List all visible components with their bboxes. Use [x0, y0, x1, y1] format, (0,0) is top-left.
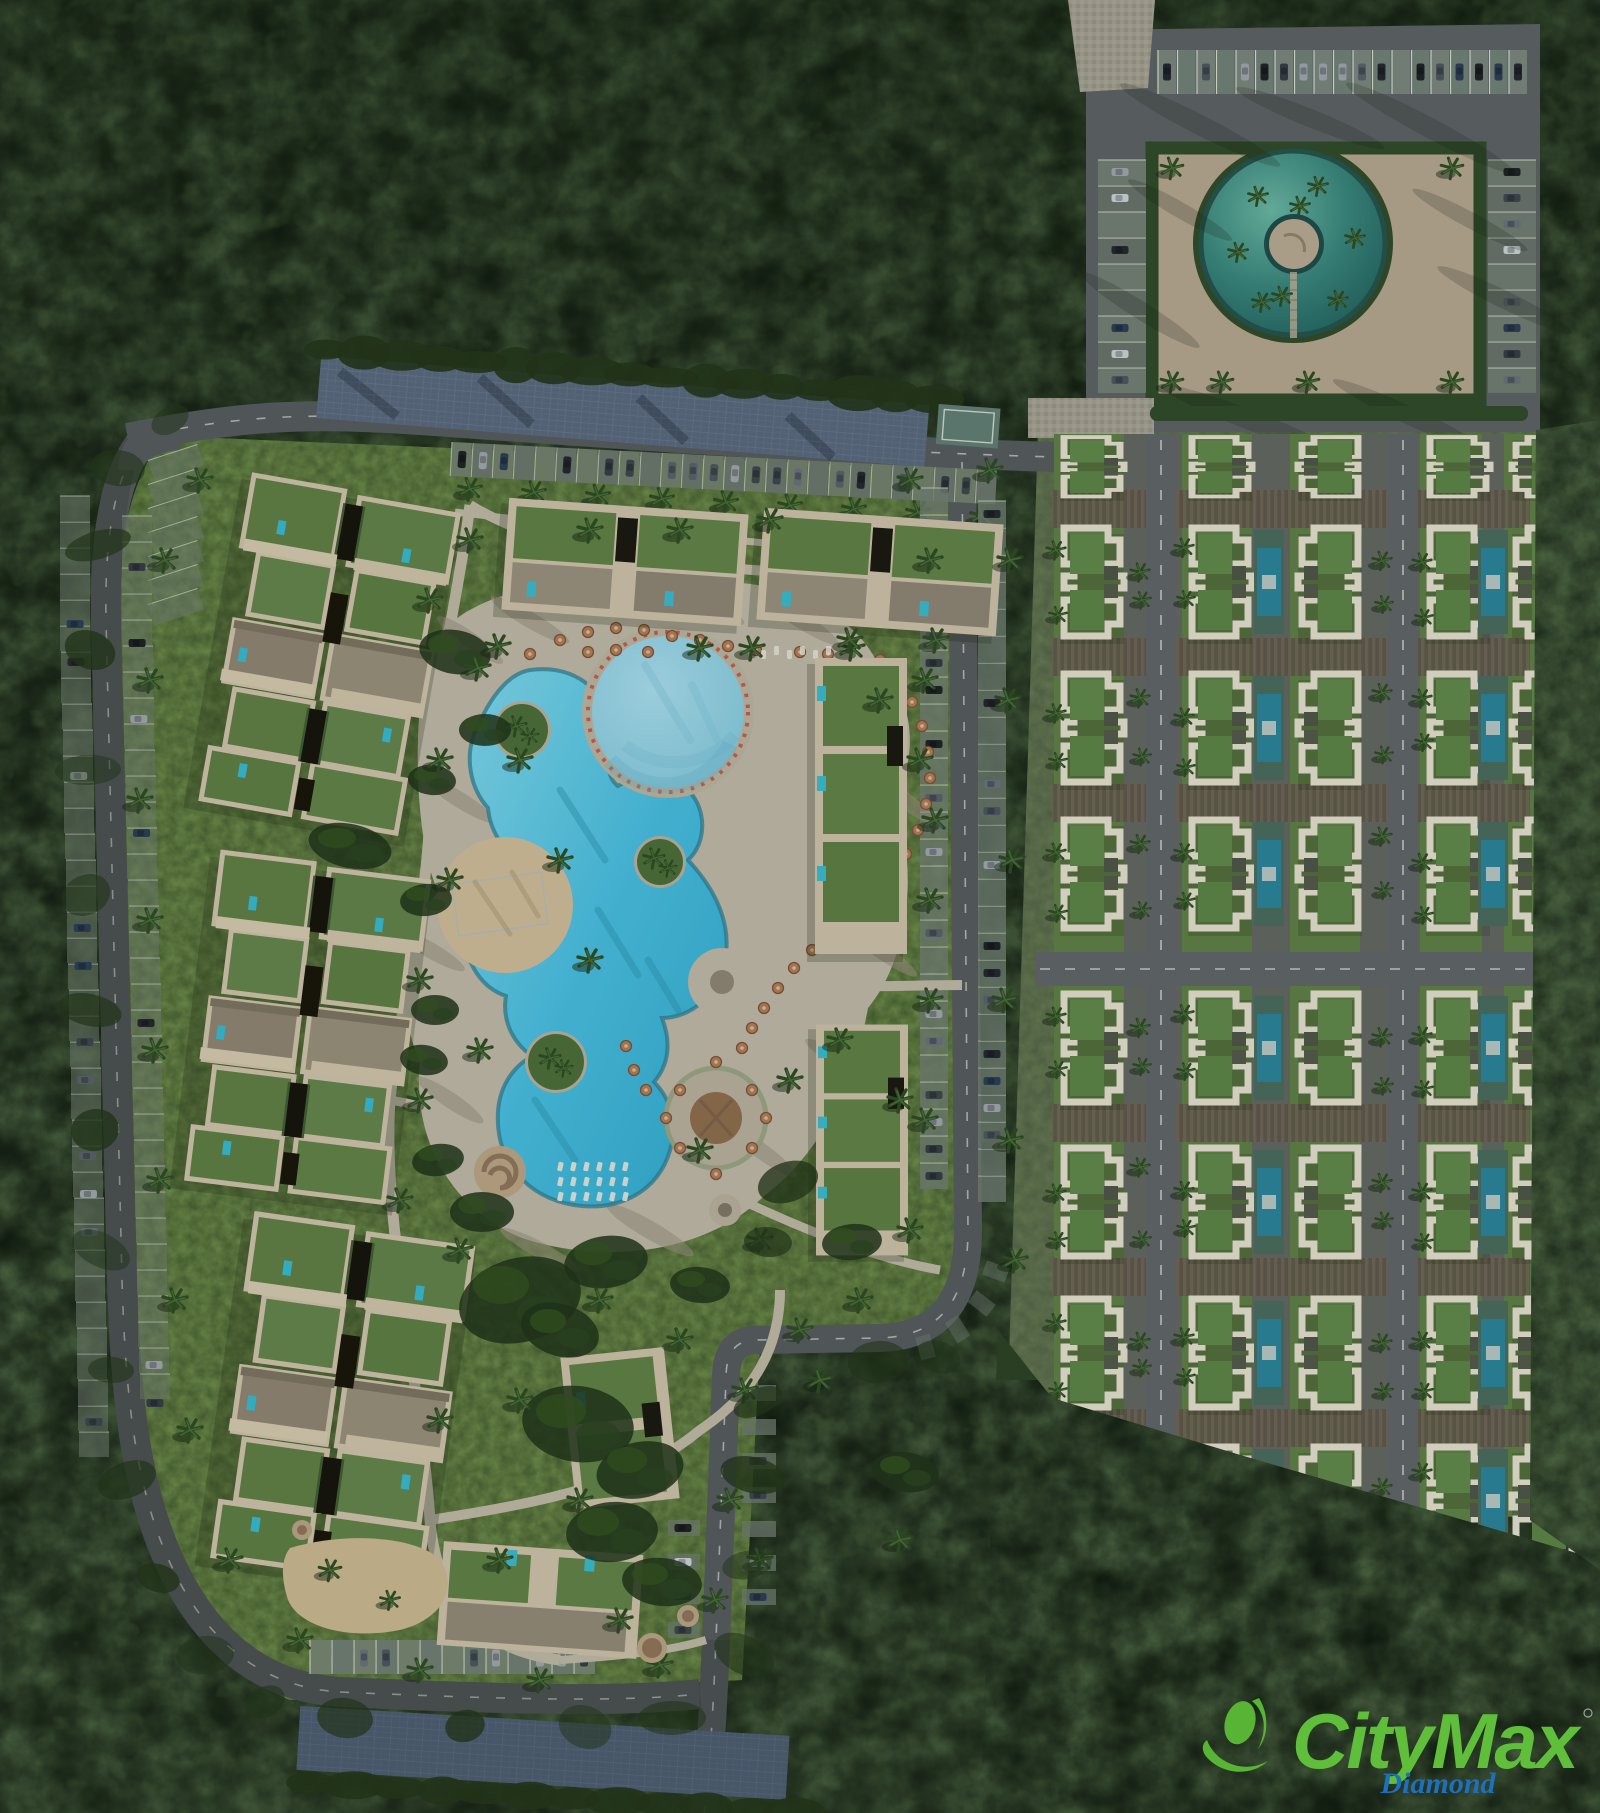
svg-text:Diamond: Diamond — [1379, 1767, 1496, 1800]
